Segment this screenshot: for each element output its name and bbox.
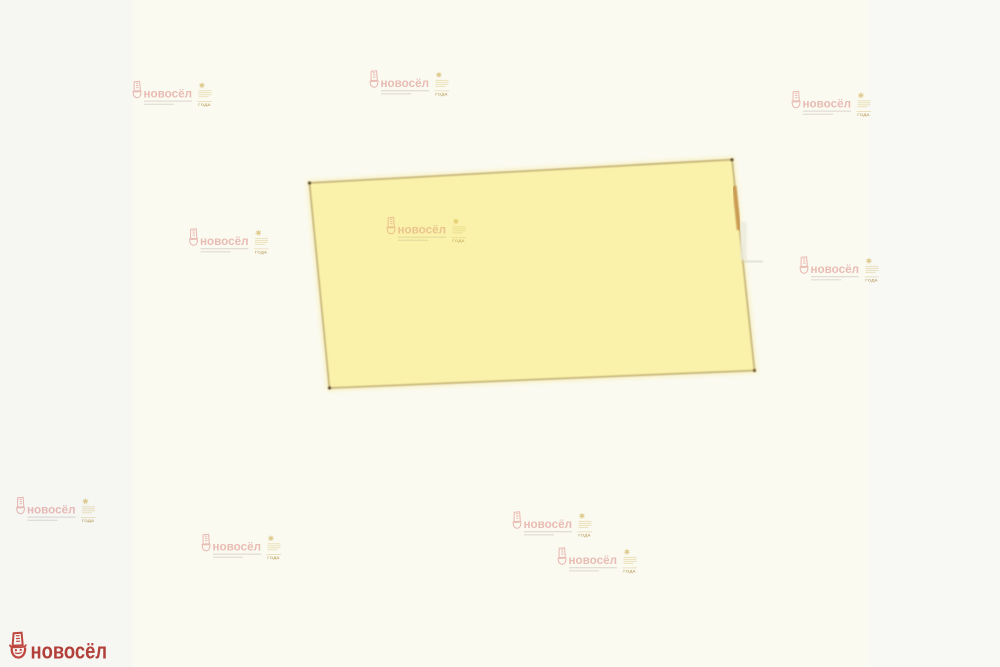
svg-text:новосёл: новосёл — [31, 639, 108, 664]
